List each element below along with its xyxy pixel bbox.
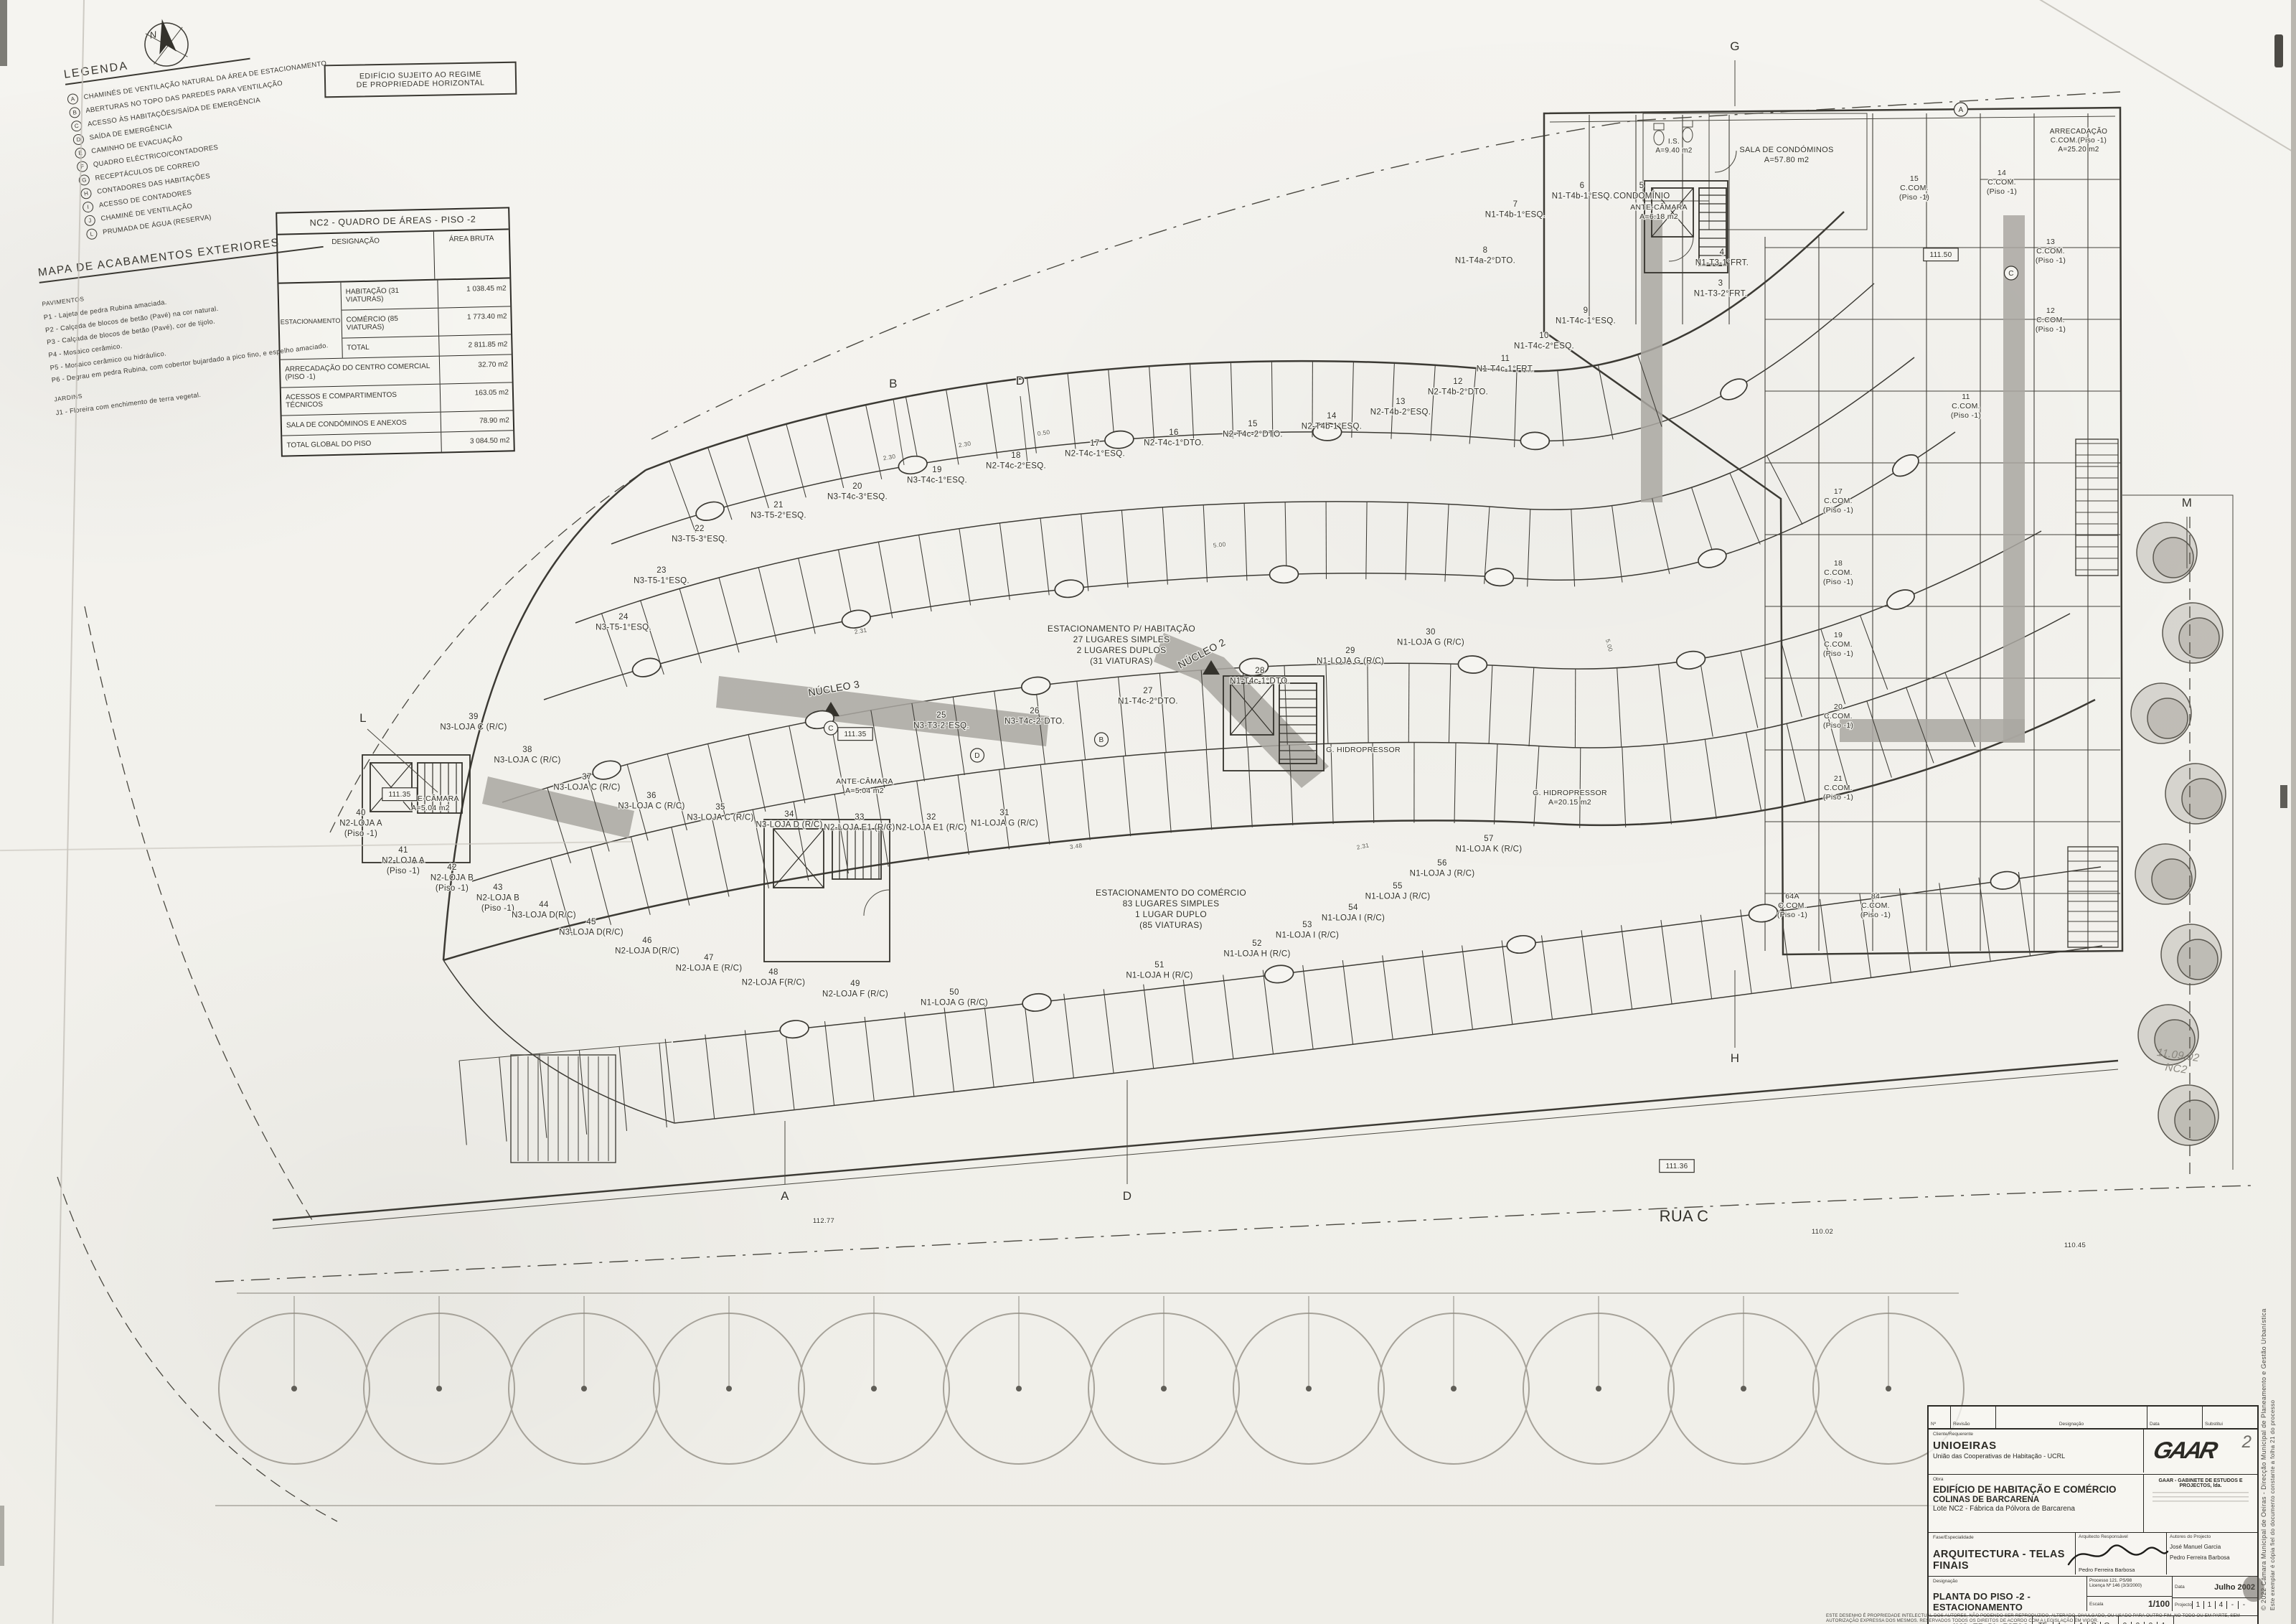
svg-text:52N1-LOJA H (R/C): 52N1-LOJA H (R/C) (1223, 939, 1290, 958)
title-block: Nº Revisão Designação Data Substitui Cli… (1927, 1405, 2259, 1624)
plan-label: 33N2-LOJA E1 (R/C) (824, 813, 895, 832)
svg-text:41N2-LOJA A(Piso -1): 41N2-LOJA A(Piso -1) (382, 846, 425, 876)
svg-text:5.00: 5.00 (1604, 638, 1614, 652)
svg-text:19C.COM.(Piso -1): 19C.COM.(Piso -1) (1823, 631, 1853, 658)
designation-cell: Designação PLANTA DO PISO -2 - ESTACIONA… (1929, 1577, 2086, 1615)
svg-text:H: H (1731, 1051, 1740, 1065)
plan-labels: 24N3-T5-1°ESQ.23N3-T5-1°ESQ.22N3-T5-3°ES… (339, 39, 2201, 1249)
svg-text:21N3-T5-2°ESQ.: 21N3-T5-2°ESQ. (751, 501, 806, 520)
plan-label: 11N1-T4c-1°FRT. (1477, 355, 1535, 373)
plan-label: 48N2-LOJA F(R/C) (742, 968, 806, 987)
municipal-stamp-text: © 2022 Câmara Municipal de Oeiras - Dire… (2260, 749, 2276, 1610)
svg-text:4N1-T3-1°FRT.: 4N1-T3-1°FRT. (1695, 248, 1749, 267)
plan-label: 27N1-T4c-2°DTO. (1118, 687, 1178, 705)
plan-label: 12N2-T4b-2°DTO. (1428, 377, 1488, 396)
plan-label: RUA C (1660, 1207, 1709, 1225)
plan-label: 47N2-LOJA E (R/C) (676, 954, 743, 972)
plan-label: 64AC.COM.(Piso -1) (1777, 892, 1807, 919)
svg-text:64AC.COM.(Piso -1): 64AC.COM.(Piso -1) (1777, 892, 1807, 919)
plan-label: 4N1-T3-1°FRT. (1695, 248, 1749, 267)
svg-text:11N1-T4c-1°FRT.: 11N1-T4c-1°FRT. (1477, 355, 1535, 373)
svg-text:ESTACIONAMENTO DO COMÉRCIO83 L: ESTACIONAMENTO DO COMÉRCIO83 LUGARES SIM… (1096, 887, 1246, 930)
plan-label: 2.30 (958, 440, 971, 449)
svg-text:14C.COM.(Piso -1): 14C.COM.(Piso -1) (1987, 169, 2017, 196)
responsible-architect-cell: Arquitecto Responsável Pedro Ferreira Ba… (2075, 1533, 2166, 1574)
plan-label: G (1730, 39, 1740, 53)
building-structure-lines (215, 212, 2253, 1506)
svg-text:D: D (1123, 1189, 1132, 1203)
svg-text:5.00: 5.00 (1213, 540, 1226, 549)
plan-label: 52N1-LOJA H (R/C) (1223, 939, 1290, 958)
plan-label: 111.35 (838, 728, 872, 741)
svg-text:48N2-LOJA F(R/C): 48N2-LOJA F(R/C) (742, 968, 806, 987)
plan-label: 11C.COM.(Piso -1) (1951, 393, 1981, 420)
plan-label: 84C.COM.(Piso -1) (1860, 892, 1891, 919)
plan-label: SALA DE CONDÓMINOSA=57.80 m2 (1739, 145, 1833, 164)
plan-label: 42N2-LOJA B(Piso -1) (430, 863, 474, 893)
obra-cell: Obra EDIFÍCIO DE HABITAÇÃO E COMÉRCIO CO… (1929, 1475, 2143, 1529)
legend-key: J (84, 215, 96, 227)
plan-label: 38N3-LOJA C (R/C) (494, 746, 560, 764)
logo-cell: GAAR 2 (2143, 1430, 2257, 1473)
svg-text:C: C (828, 725, 834, 733)
plan-label: 17C.COM.(Piso -1) (1823, 487, 1853, 515)
svg-text:G. HIDROPRESSOR: G. HIDROPRESSOR (1326, 746, 1401, 754)
copyright-disclaimer: ESTE DESENHO É PROPRIEDADE INTELECTUAL D… (1826, 1613, 2257, 1624)
plan-label: A (781, 1189, 789, 1203)
svg-text:13N2-T4b-2°ESQ.: 13N2-T4b-2°ESQ. (1370, 398, 1431, 416)
plan-label: 24N3-T5-1°ESQ. (596, 613, 651, 632)
plan-label: 7N1-T4b-1°ESQ. (1485, 200, 1546, 219)
svg-text:29N1-LOJA G (R/C): 29N1-LOJA G (R/C) (1317, 647, 1384, 665)
scan-artifact (2280, 785, 2287, 808)
plan-label: D (971, 748, 984, 762)
firm-logo: GAAR (2150, 1437, 2219, 1464)
svg-text:5CONDOMÍNIO: 5CONDOMÍNIO (1613, 182, 1670, 200)
svg-text:40N2-LOJA A(Piso -1): 40N2-LOJA A(Piso -1) (339, 809, 382, 838)
svg-text:D: D (1016, 374, 1025, 388)
plan-label: 44N3-LOJA D(R/C) (512, 901, 576, 919)
client-name: UNIOEIRAS (1933, 1440, 2139, 1452)
svg-text:SALA DE CONDÓMINOSA=57.80 m2: SALA DE CONDÓMINOSA=57.80 m2 (1739, 145, 1833, 164)
plan-label: 14C.COM.(Piso -1) (1987, 169, 2017, 196)
svg-text:2.30: 2.30 (883, 453, 896, 462)
svg-text:M: M (2182, 496, 2192, 510)
revision-strip: Nº Revisão Designação Data Substitui (1929, 1407, 2257, 1428)
plan-label: 5.00 (1604, 638, 1614, 652)
svg-text:111.50: 111.50 (1930, 251, 1952, 259)
plan-label: 35N3-LOJA C (R/C) (687, 803, 753, 822)
svg-text:ANTE-CÂMARAA=6.18 m2: ANTE-CÂMARAA=6.18 m2 (1630, 202, 1688, 221)
svg-text:49N2-LOJA F (R/C): 49N2-LOJA F (R/C) (822, 980, 888, 998)
plan-label: 36N3-LOJA C (R/C) (618, 792, 684, 810)
client-cell: Cliente/Requerente UNIOEIRAS União das C… (1929, 1430, 2143, 1474)
svg-text:54N1-LOJA I (R/C): 54N1-LOJA I (R/C) (1322, 903, 1385, 922)
plan-label: 51N1-LOJA H (R/C) (1126, 961, 1192, 980)
plan-label: 22N3-T5-3°ESQ. (672, 525, 728, 543)
svg-text:33N2-LOJA E1 (R/C): 33N2-LOJA E1 (R/C) (824, 813, 895, 832)
plan-label: A (1954, 103, 1968, 116)
svg-text:2.31: 2.31 (1356, 841, 1370, 850)
scanned-floor-plan-sheet: N (0, 0, 2296, 1624)
plan-label: 10N1-T4c-2°ESQ. (1514, 332, 1574, 350)
plan-label: 0.50 (1037, 428, 1050, 437)
svg-text:16N2-T4c-1°DTO.: 16N2-T4c-1°DTO. (1144, 428, 1204, 447)
copy-number: 2 (2242, 1432, 2252, 1452)
svg-text:53N1-LOJA I (R/C): 53N1-LOJA I (R/C) (1276, 921, 1339, 939)
svg-text:110.02: 110.02 (1812, 1228, 1833, 1236)
plan-label: 20N3-T4c-3°ESQ. (827, 482, 888, 501)
svg-text:51N1-LOJA H (R/C): 51N1-LOJA H (R/C) (1126, 961, 1192, 980)
svg-text:31N1-LOJA G (R/C): 31N1-LOJA G (R/C) (971, 809, 1038, 827)
plan-label: 53N1-LOJA I (R/C) (1276, 921, 1339, 939)
svg-text:G: G (1730, 39, 1740, 53)
scan-artifact (2274, 34, 2283, 67)
plan-label: C (824, 721, 838, 735)
scan-artifact (2243, 1576, 2264, 1602)
plan-label: 16N2-T4c-1°DTO. (1144, 428, 1204, 447)
svg-text:43N2-LOJA B(Piso -1): 43N2-LOJA B(Piso -1) (476, 883, 519, 913)
legend-key: A (67, 93, 79, 105)
street-trees (219, 1296, 1964, 1464)
plan-label: 40N2-LOJA A(Piso -1) (339, 809, 382, 838)
svg-text:6N1-T4b-1°ESQ.: 6N1-T4b-1°ESQ. (1552, 182, 1613, 200)
plan-label: 3N1-T3-2°FRT. (1694, 279, 1747, 298)
plan-label: 55N1-LOJA J (R/C) (1365, 882, 1431, 901)
svg-text:9N1-T4c-1°ESQ.: 9N1-T4c-1°ESQ. (1556, 306, 1616, 325)
plan-label: 45N3-LOJA D(R/C) (559, 918, 624, 937)
plan-label: G. HIDROPRESSOR (1326, 746, 1401, 754)
svg-text:22N3-T5-3°ESQ.: 22N3-T5-3°ESQ. (672, 525, 728, 543)
svg-text:50N1-LOJA G (R/C): 50N1-LOJA G (R/C) (921, 988, 988, 1007)
scan-artifact (0, 0, 7, 66)
plan-label: 9N1-T4c-1°ESQ. (1556, 306, 1616, 325)
svg-text:111.36: 111.36 (1666, 1163, 1688, 1170)
svg-text:C: C (2008, 270, 2014, 278)
svg-text:0.50: 0.50 (1037, 428, 1050, 437)
svg-text:11C.COM.(Piso -1): 11C.COM.(Piso -1) (1951, 393, 1981, 420)
plan-label: 18N2-T4c-2°ESQ. (986, 451, 1046, 470)
svg-text:13C.COM.(Piso -1): 13C.COM.(Piso -1) (2036, 238, 2066, 265)
plan-label: L (359, 711, 367, 725)
process-scale-cell: Processo 121. PS/98Licença Nº 146 (3/3/2… (2086, 1577, 2172, 1611)
svg-text:ARRECADAÇÃOC.COM.(Piso -1)A=25: ARRECADAÇÃOC.COM.(Piso -1)A=25.20 m2 (2050, 126, 2108, 154)
plan-label: 21C.COM.(Piso -1) (1823, 774, 1853, 802)
plan-label: 3.48 (1069, 842, 1083, 850)
svg-text:B: B (889, 377, 898, 390)
svg-text:L: L (359, 711, 367, 725)
plan-label: 46N2-LOJA D(R/C) (615, 937, 679, 955)
legend-key: D (72, 133, 85, 146)
svg-text:14N2-T4b-1°ESQ.: 14N2-T4b-1°ESQ. (1302, 412, 1363, 431)
svg-text:55N1-LOJA J (R/C): 55N1-LOJA J (R/C) (1365, 882, 1431, 901)
plan-label: 30N1-LOJA G (R/C) (1397, 628, 1464, 647)
plan-label: ARRECADAÇÃOC.COM.(Piso -1)A=25.20 m2 (2050, 126, 2108, 154)
plan-label: 8N1-T4a-2°DTO. (1455, 246, 1515, 265)
horizontal-property-note: EDIFÍCIO SUJEITO AO REGIME DE PROPRIEDAD… (324, 62, 517, 98)
right-block-grid (1589, 113, 2120, 951)
svg-text:35N3-LOJA C (R/C): 35N3-LOJA C (R/C) (687, 803, 753, 822)
plan-label: 32N2-LOJA E1 (R/C) (895, 813, 966, 832)
stair-cores (362, 181, 1728, 962)
plan-label: H (1731, 1051, 1740, 1065)
svg-text:15N2-T4c-2°DTO.: 15N2-T4c-2°DTO. (1223, 420, 1283, 438)
plan-label: 49N2-LOJA F (R/C) (822, 980, 888, 998)
plan-label: B (1095, 733, 1109, 746)
plan-label: 29N1-LOJA G (R/C) (1317, 647, 1384, 665)
plan-label: 43N2-LOJA B(Piso -1) (476, 883, 519, 913)
plan-label: 5CONDOMÍNIO (1613, 182, 1670, 200)
svg-text:110.45: 110.45 (2064, 1242, 2086, 1249)
svg-text:36N3-LOJA C (R/C): 36N3-LOJA C (R/C) (618, 792, 684, 810)
svg-text:I.S.A=9.40 m2: I.S.A=9.40 m2 (1655, 138, 1692, 155)
svg-text:111.35: 111.35 (389, 791, 411, 799)
legend-key: F (76, 161, 88, 173)
plan-label: 31N1-LOJA G (R/C) (971, 809, 1038, 827)
plan-label: 13N2-T4b-2°ESQ. (1370, 398, 1431, 416)
legend-key: H (80, 187, 93, 200)
plan-label: ANTE-CÂMARAA=6.18 m2 (1630, 202, 1688, 221)
svg-text:57N1-LOJA K (R/C): 57N1-LOJA K (R/C) (1456, 835, 1523, 853)
plan-label: I.S.A=9.40 m2 (1655, 138, 1692, 155)
plan-label: 19C.COM.(Piso -1) (1823, 631, 1853, 658)
svg-text:27N1-T4c-2°DTO.: 27N1-T4c-2°DTO. (1118, 687, 1178, 705)
plan-label: 18C.COM.(Piso -1) (1823, 559, 1853, 586)
plan-label: 39N3-LOJA C (R/C) (440, 713, 507, 731)
plan-label: G. HIDROPRESSORA=20.15 m2 (1533, 789, 1607, 807)
svg-text:B: B (1099, 736, 1104, 744)
fase-cell: Fase/Especialidade ARQUITECTURA - TELAS … (1929, 1533, 2075, 1576)
svg-text:D: D (974, 752, 980, 760)
grid-letter-leaders (367, 60, 2187, 1184)
plan-label: 54N1-LOJA I (R/C) (1322, 903, 1385, 922)
svg-text:A: A (781, 1189, 789, 1203)
legend-key: I (82, 201, 94, 213)
plan-label: 56N1-LOJA J (R/C) (1410, 859, 1475, 878)
plan-label: 23N3-T5-1°ESQ. (634, 566, 690, 585)
plan-label: 15C.COM.(Piso -1) (1899, 174, 1929, 202)
plan-label: 2.31 (854, 626, 867, 636)
svg-text:23N3-T5-1°ESQ.: 23N3-T5-1°ESQ. (634, 566, 690, 585)
authors-cell: Autores do Projecto José Manuel Garcia P… (2166, 1533, 2257, 1574)
plan-label: 111.36 (1660, 1160, 1694, 1173)
scan-artifact (0, 1506, 4, 1566)
svg-text:G. HIDROPRESSORA=20.15 m2: G. HIDROPRESSORA=20.15 m2 (1533, 789, 1607, 807)
svg-text:7N1-T4b-1°ESQ.: 7N1-T4b-1°ESQ. (1485, 200, 1546, 219)
plan-label: C (2005, 266, 2018, 280)
plan-label: B (889, 377, 898, 390)
svg-text:46N2-LOJA D(R/C): 46N2-LOJA D(R/C) (615, 937, 679, 955)
plan-label: 13C.COM.(Piso -1) (2036, 238, 2066, 265)
plan-label: 21N3-T5-2°ESQ. (751, 501, 806, 520)
legend-key: B (69, 106, 81, 118)
svg-text:18N2-T4c-2°ESQ.: 18N2-T4c-2°ESQ. (986, 451, 1046, 470)
svg-text:RUA C: RUA C (1660, 1207, 1709, 1225)
svg-text:8N1-T4a-2°DTO.: 8N1-T4a-2°DTO. (1455, 246, 1515, 265)
plan-label: 57N1-LOJA K (R/C) (1456, 835, 1523, 853)
plan-label: M (2182, 496, 2192, 510)
svg-text:24N3-T5-1°ESQ.: 24N3-T5-1°ESQ. (596, 613, 651, 632)
exterior-stairs-hatch (511, 439, 2118, 1163)
plan-label: 14N2-T4b-1°ESQ. (1302, 412, 1363, 431)
svg-text:44N3-LOJA D(R/C): 44N3-LOJA D(R/C) (512, 901, 576, 919)
firm-address-illegible (2152, 1492, 2249, 1505)
plan-label: 12C.COM.(Piso -1) (2036, 306, 2066, 334)
plan-label: 111.50 (1924, 248, 1958, 261)
svg-text:3.48: 3.48 (1069, 842, 1083, 850)
firm-cell: GAAR - GABINETE DE ESTUDOS E PROJECTOS, … (2143, 1475, 2257, 1532)
svg-text:12N2-T4b-2°DTO.: 12N2-T4b-2°DTO. (1428, 377, 1488, 396)
plan-label: 2.31 (1356, 841, 1370, 850)
svg-text:112.77: 112.77 (813, 1217, 834, 1225)
plan-label: D (1123, 1189, 1132, 1203)
plan-label: 110.02 (1812, 1228, 1833, 1236)
svg-text:30N1-LOJA G (R/C): 30N1-LOJA G (R/C) (1397, 628, 1464, 647)
circulation-corridors (482, 215, 2025, 838)
plan-label: 110.45 (2064, 1242, 2086, 1249)
legend-key: L (85, 228, 98, 240)
svg-text:17C.COM.(Piso -1): 17C.COM.(Piso -1) (1823, 487, 1853, 515)
svg-text:18C.COM.(Piso -1): 18C.COM.(Piso -1) (1823, 559, 1853, 586)
door-swings (864, 151, 1736, 916)
plan-label: ESTACIONAMENTO DO COMÉRCIO83 LUGARES SIM… (1096, 887, 1246, 930)
plan-label: 41N2-LOJA A(Piso -1) (382, 846, 425, 876)
signature (2063, 1537, 2170, 1570)
svg-text:21C.COM.(Piso -1): 21C.COM.(Piso -1) (1823, 774, 1853, 802)
svg-text:2.31: 2.31 (854, 626, 867, 636)
plan-label: 15N2-T4c-2°DTO. (1223, 420, 1283, 438)
svg-text:12C.COM.(Piso -1): 12C.COM.(Piso -1) (2036, 306, 2066, 334)
plan-label: 2.30 (883, 453, 896, 462)
svg-text:47N2-LOJA E (R/C): 47N2-LOJA E (R/C) (676, 954, 743, 972)
svg-text:56N1-LOJA J (R/C): 56N1-LOJA J (R/C) (1410, 859, 1475, 878)
svg-text:84C.COM.(Piso -1): 84C.COM.(Piso -1) (1860, 892, 1891, 919)
svg-text:2.30: 2.30 (958, 440, 971, 449)
plan-label: 50N1-LOJA G (R/C) (921, 988, 988, 1007)
svg-text:3N1-T3-2°FRT.: 3N1-T3-2°FRT. (1694, 279, 1747, 298)
plan-label: D (1016, 374, 1025, 388)
svg-text:10N1-T4c-2°ESQ.: 10N1-T4c-2°ESQ. (1514, 332, 1574, 350)
plan-label: 6N1-T4b-1°ESQ. (1552, 182, 1613, 200)
plan-label: 5.00 (1213, 540, 1226, 549)
svg-text:45N3-LOJA D(R/C): 45N3-LOJA D(R/C) (559, 918, 624, 937)
svg-text:38N3-LOJA C (R/C): 38N3-LOJA C (R/C) (494, 746, 560, 764)
svg-text:42N2-LOJA B(Piso -1): 42N2-LOJA B(Piso -1) (430, 863, 474, 893)
svg-text:39N3-LOJA C (R/C): 39N3-LOJA C (R/C) (440, 713, 507, 731)
svg-text:A: A (1959, 106, 1964, 114)
svg-text:15C.COM.(Piso -1): 15C.COM.(Piso -1) (1899, 174, 1929, 202)
svg-text:111.35: 111.35 (844, 731, 867, 738)
north-letter: N (149, 29, 157, 41)
svg-text:32N2-LOJA E1 (R/C): 32N2-LOJA E1 (R/C) (895, 813, 966, 832)
plan-label: 111.35 (382, 788, 417, 801)
svg-text:20N3-T4c-3°ESQ.: 20N3-T4c-3°ESQ. (827, 482, 888, 501)
plan-label: 112.77 (813, 1217, 834, 1225)
scan-edge (2291, 0, 2296, 1624)
